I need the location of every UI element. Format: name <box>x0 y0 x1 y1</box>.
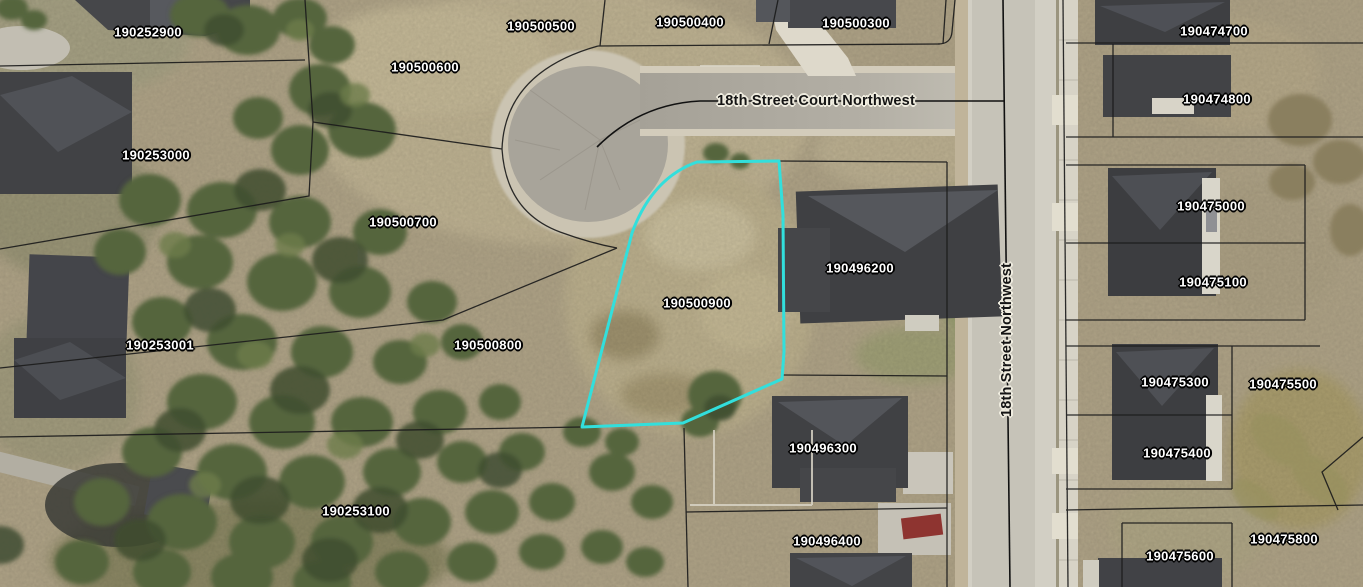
house <box>778 185 1002 331</box>
house <box>1103 55 1231 117</box>
aerial-imagery <box>0 0 1363 587</box>
house <box>1112 344 1222 481</box>
house <box>772 396 908 502</box>
house <box>14 254 129 418</box>
house <box>1083 558 1222 587</box>
map-canvas[interactable]: 1902529001905005001905004001905003001904… <box>0 0 1363 587</box>
house <box>1108 168 1220 296</box>
house <box>0 72 132 194</box>
house <box>1095 0 1230 45</box>
house <box>790 553 912 587</box>
